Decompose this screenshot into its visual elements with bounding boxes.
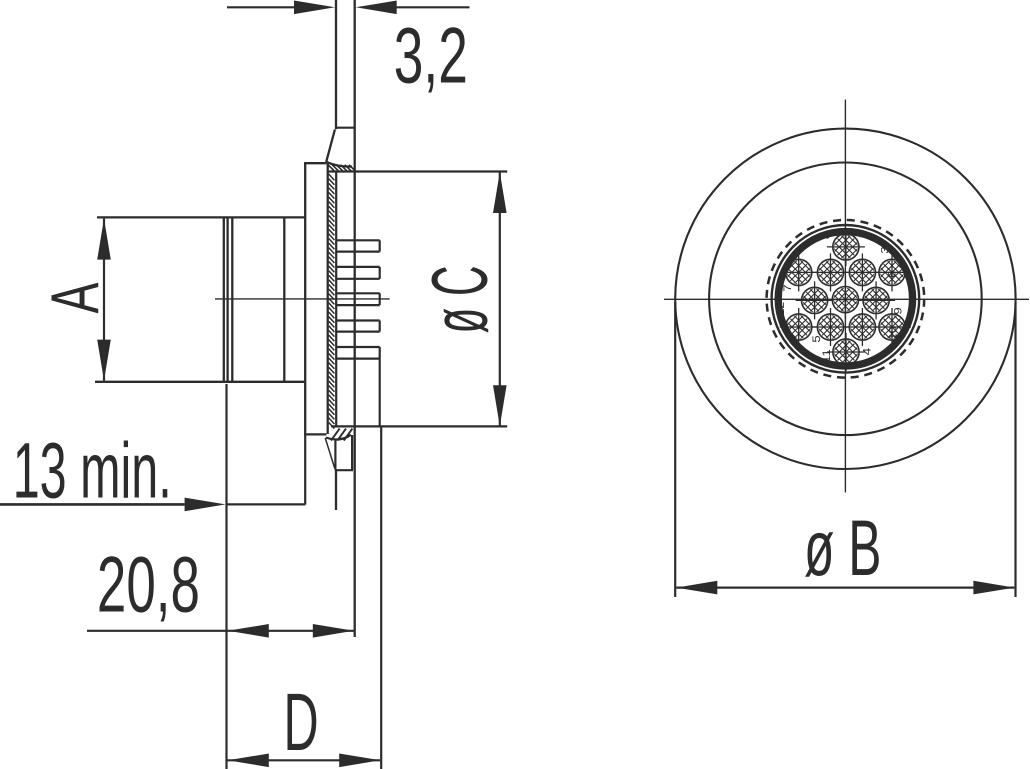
svg-text:9: 9 <box>893 307 905 315</box>
svg-text:A: A <box>37 282 113 313</box>
svg-text:ø B: ø B <box>804 503 882 592</box>
svg-text:3,2: 3,2 <box>394 11 468 100</box>
svg-text:6: 6 <box>887 270 899 278</box>
svg-text:4: 4 <box>862 348 874 356</box>
svg-text:5: 5 <box>811 335 823 343</box>
svg-text:13 min.: 13 min. <box>13 426 172 515</box>
svg-text:8: 8 <box>821 232 833 240</box>
svg-text:3: 3 <box>880 246 892 254</box>
svg-text:12: 12 <box>775 302 787 316</box>
svg-text:D: D <box>284 677 319 768</box>
svg-text:1: 1 <box>853 229 865 237</box>
svg-text:20,8: 20,8 <box>97 540 200 629</box>
svg-text:7: 7 <box>782 284 794 292</box>
svg-text:ø C: ø C <box>414 266 503 334</box>
svg-text:11: 11 <box>821 349 833 363</box>
svg-text:10: 10 <box>888 326 900 340</box>
